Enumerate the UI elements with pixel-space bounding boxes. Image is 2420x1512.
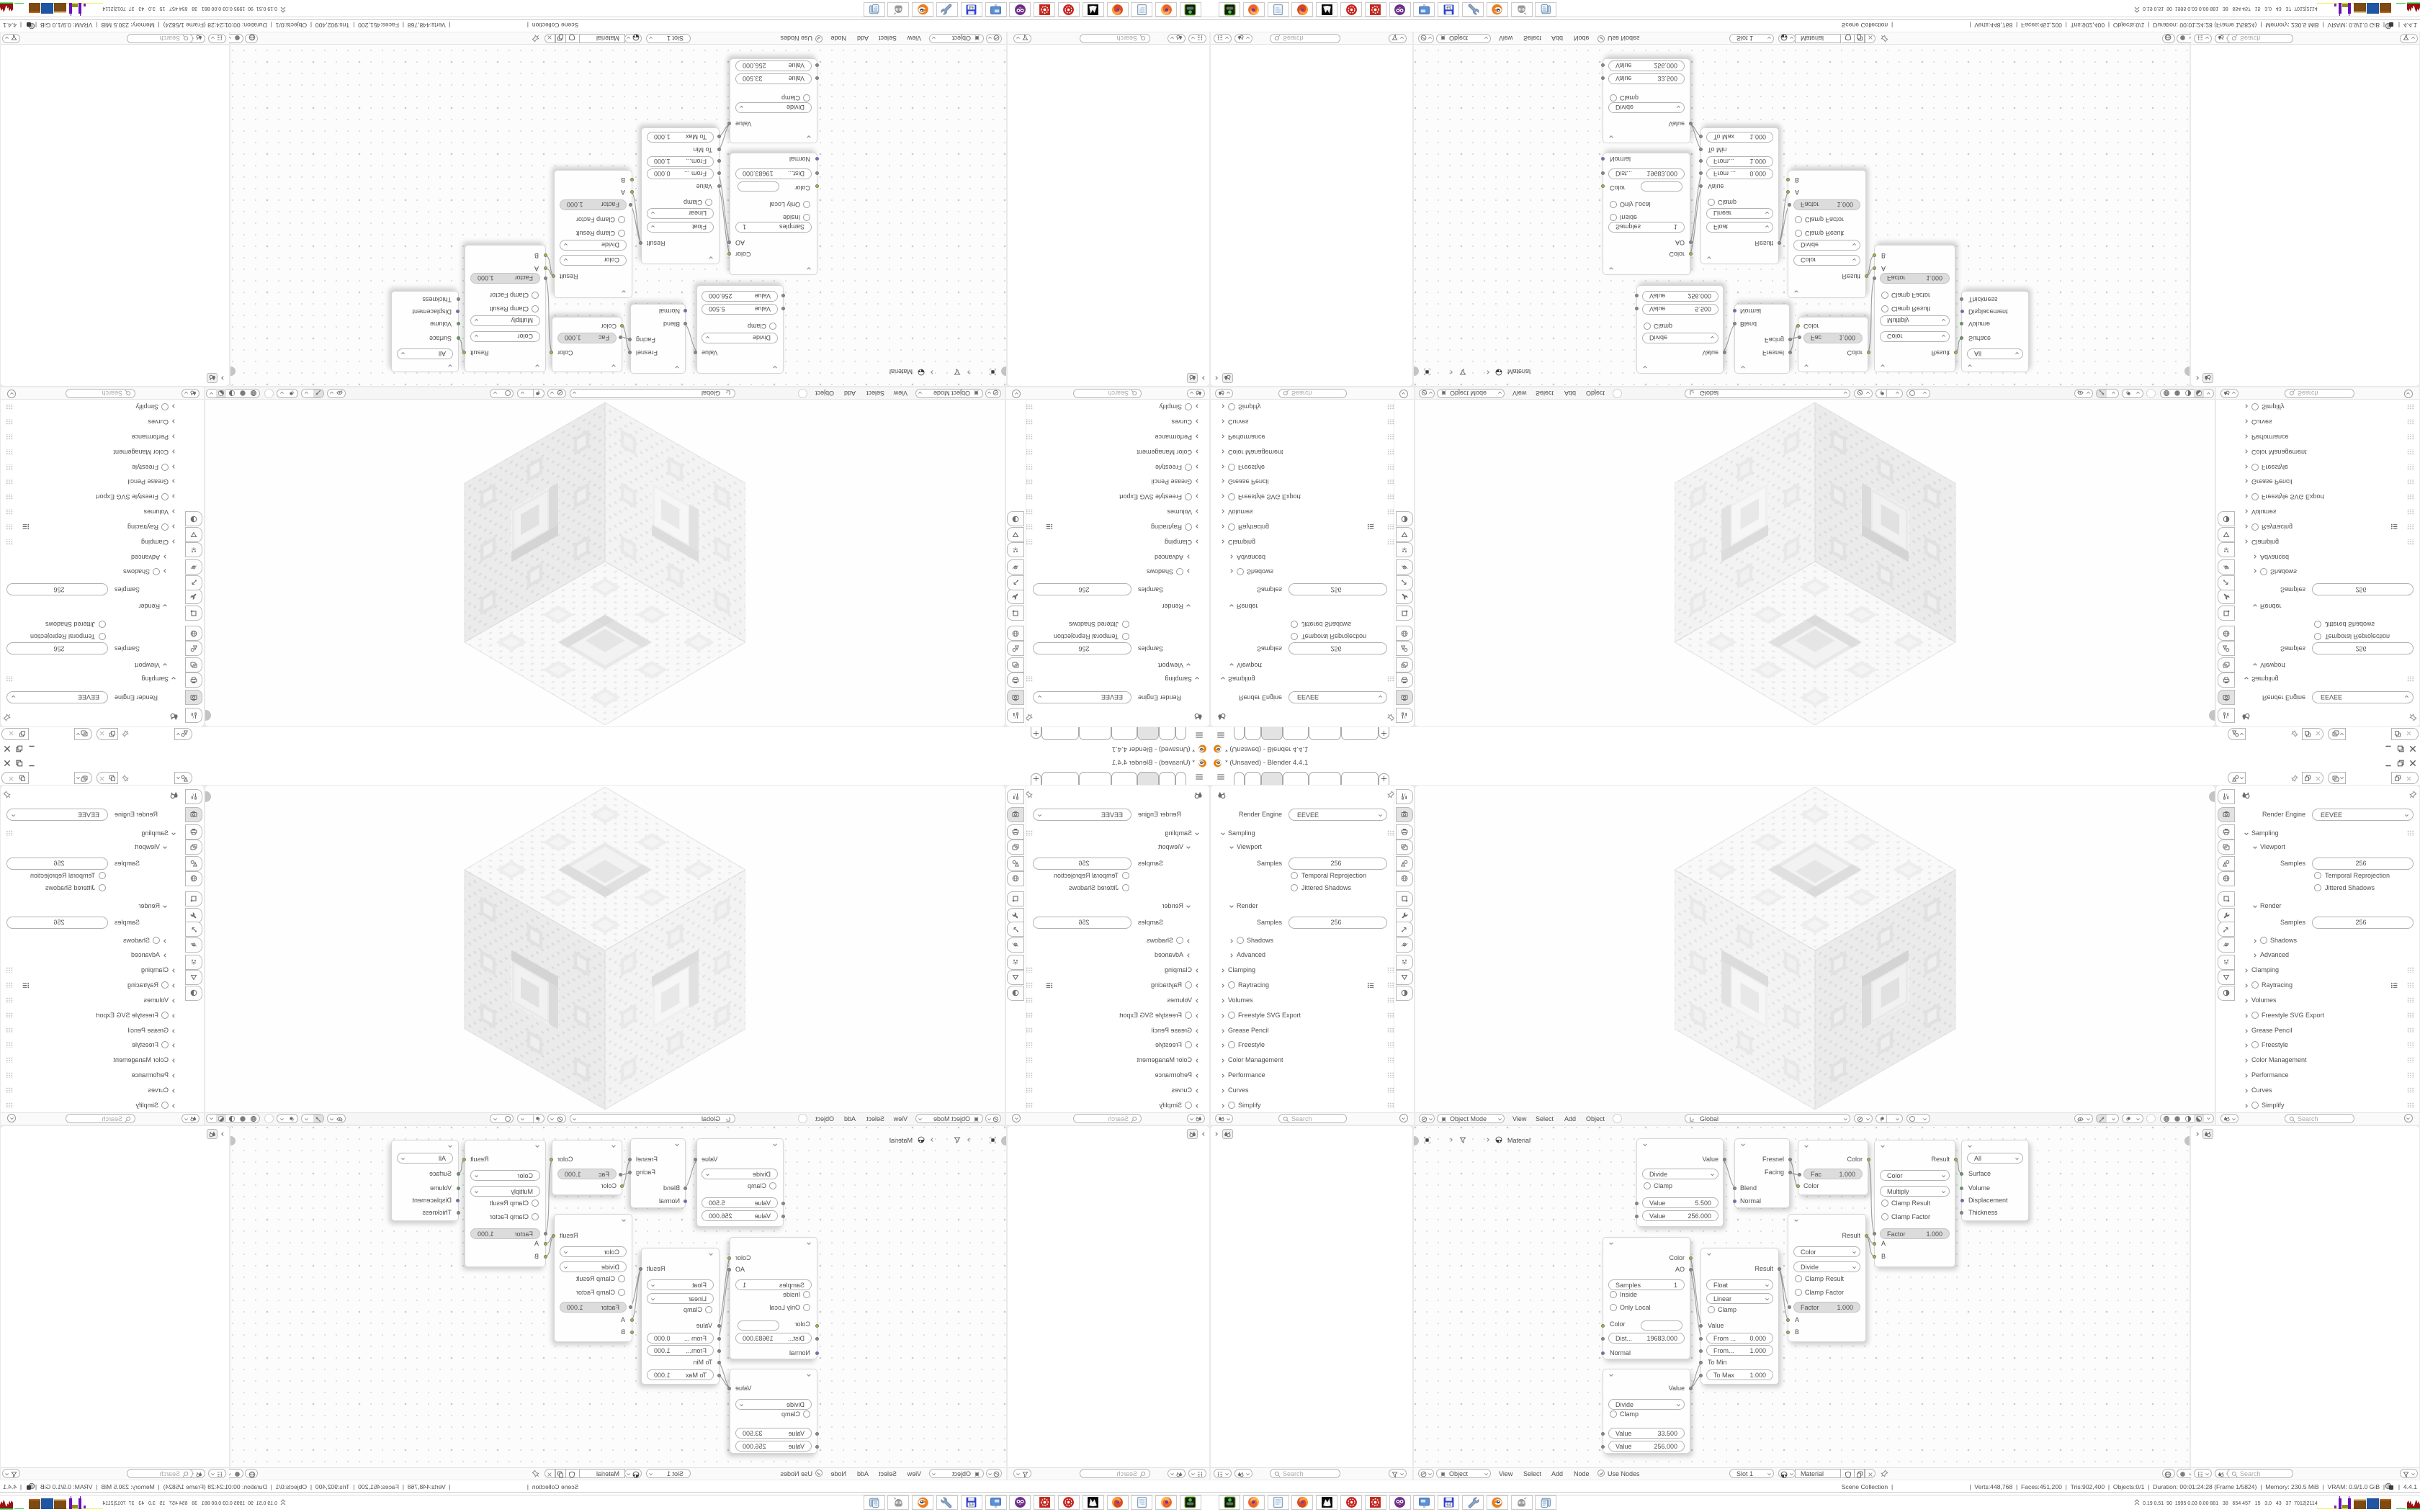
svg-text:64: 64 xyxy=(1446,1503,1451,1508)
svg-text:64: 64 xyxy=(1446,4,1451,9)
svg-text:64: 64 xyxy=(969,4,974,9)
svg-text:64: 64 xyxy=(969,1503,974,1508)
